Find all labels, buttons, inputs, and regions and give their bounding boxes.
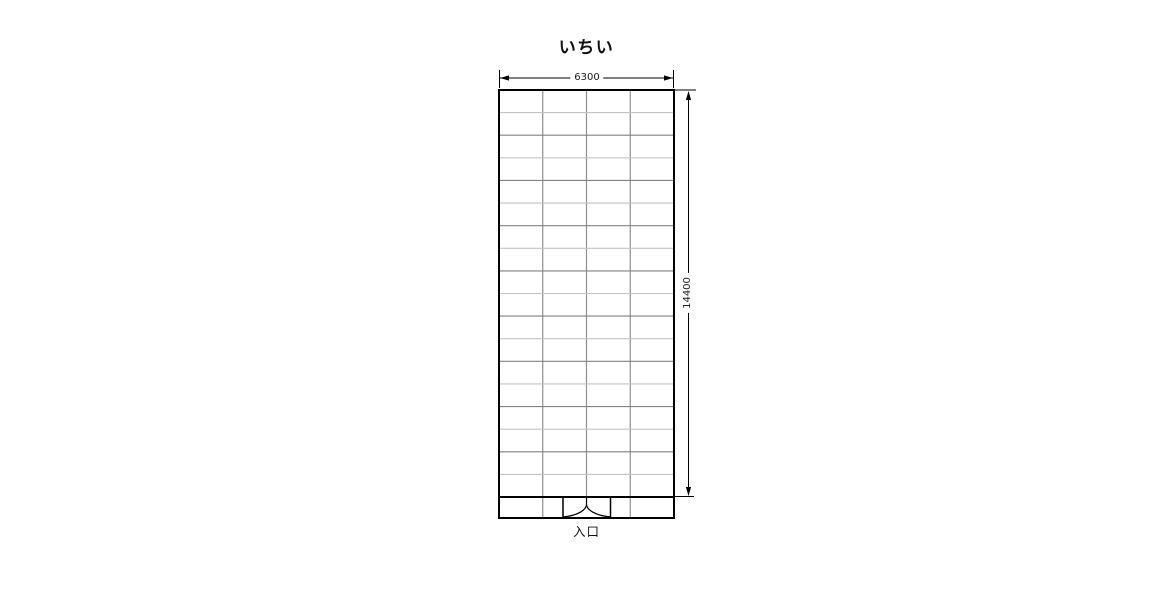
- dimension-arrow-down: [686, 487, 691, 496]
- door-swing-arc-right: [587, 504, 611, 517]
- plan-canvas: いちい 6300 14400 入口: [0, 0, 1175, 600]
- dimension-arrow-right: [664, 75, 673, 80]
- dimension-arrow-left: [500, 75, 509, 80]
- dimension-arrow-up: [686, 91, 691, 100]
- door-swing-arc-left: [563, 504, 587, 517]
- plan-title: いちい: [499, 33, 674, 58]
- entrance-label: 入口: [499, 521, 674, 540]
- plan-drawing: [0, 0, 1175, 600]
- entrance-row-border: [499, 497, 674, 518]
- width-dimension-label: 6300: [570, 72, 603, 84]
- plot-area-border: [499, 90, 674, 497]
- height-dimension-label: 14400: [682, 273, 694, 313]
